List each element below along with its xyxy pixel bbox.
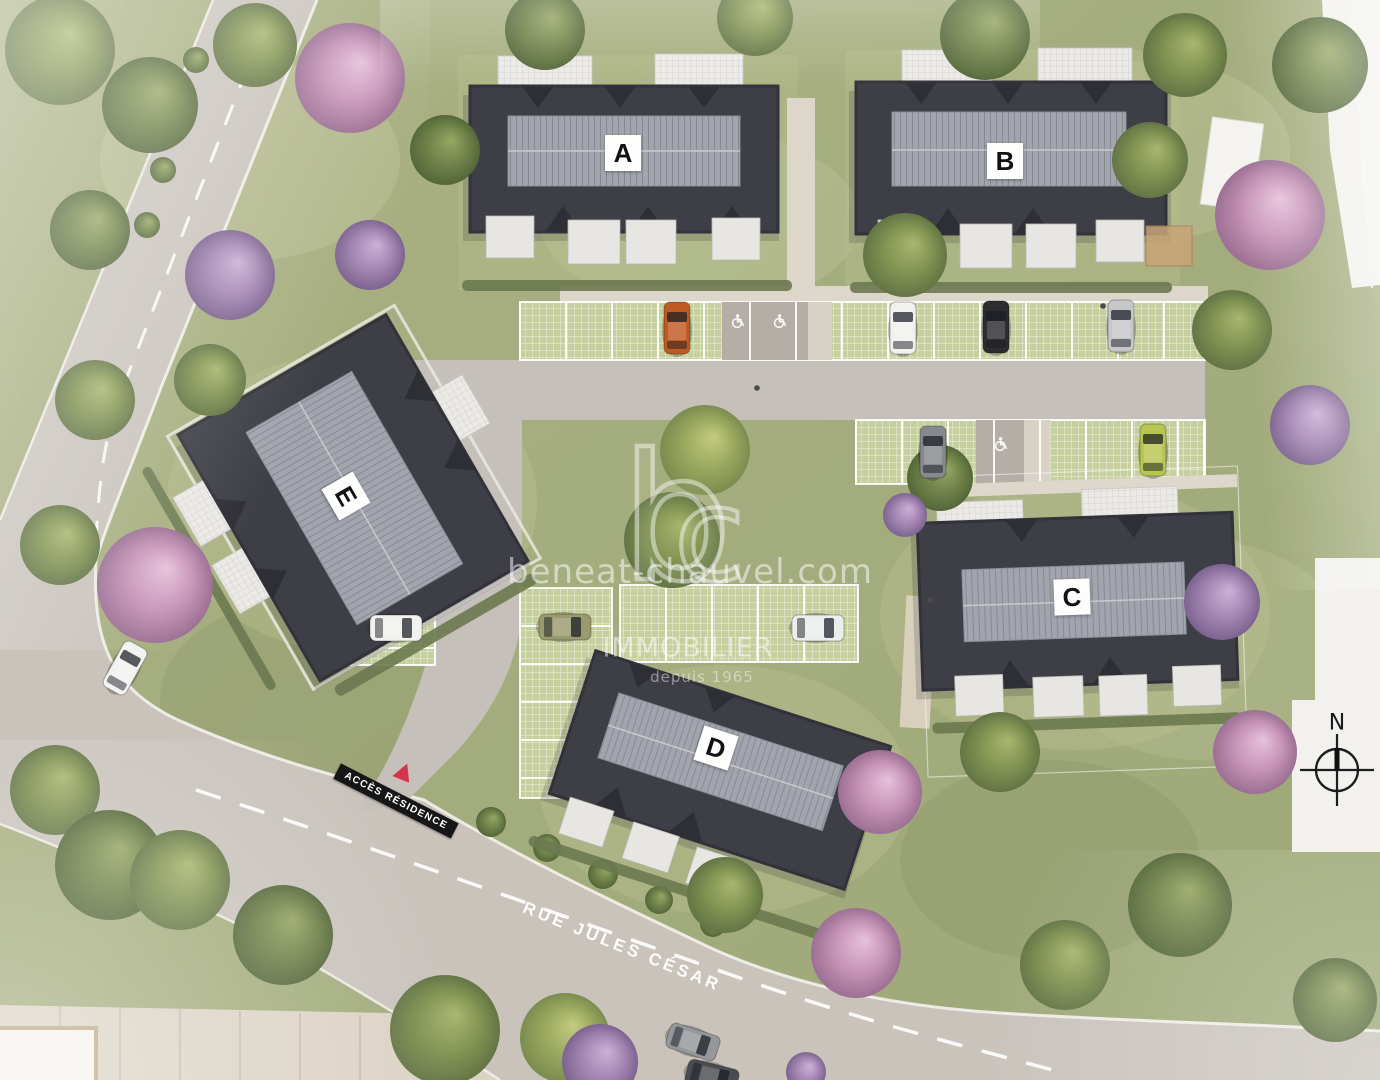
garden-pergola <box>1146 226 1192 266</box>
building-a <box>462 54 792 291</box>
tree <box>390 975 500 1080</box>
tree <box>1112 122 1188 198</box>
footpath <box>787 98 815 290</box>
watermark-brand: IMMOBILIER <box>602 633 773 664</box>
balcony <box>1172 665 1221 707</box>
car <box>536 612 591 642</box>
person <box>1100 303 1106 309</box>
car <box>789 613 844 643</box>
hedge-bush <box>134 212 160 238</box>
footpath <box>808 302 832 360</box>
car <box>981 301 1011 356</box>
hedge <box>462 280 792 291</box>
tree <box>1293 958 1377 1042</box>
balcony <box>486 216 534 258</box>
flowering-tree <box>335 220 405 290</box>
flowering-tree <box>1215 160 1325 270</box>
balcony <box>712 218 760 260</box>
tree <box>1020 920 1110 1010</box>
balcony <box>1099 674 1148 716</box>
flowering-tree <box>811 908 901 998</box>
flowering-shrub <box>883 493 927 537</box>
neighbor-roof-corner <box>0 1030 94 1080</box>
person <box>927 597 933 603</box>
tree <box>863 213 947 297</box>
flowering-tree <box>1270 385 1350 465</box>
balcony <box>955 674 1004 716</box>
footpath <box>1024 420 1050 484</box>
watermark-tagline: depuis 1965 <box>650 668 754 686</box>
balcony <box>1096 220 1144 262</box>
flowering-tree <box>97 527 213 643</box>
tree <box>410 115 480 185</box>
car <box>1106 300 1136 355</box>
building-label-a: A <box>605 135 641 171</box>
tree <box>960 712 1040 792</box>
tree <box>687 857 763 933</box>
compass-north-label: N <box>1329 711 1345 736</box>
tree <box>1128 853 1232 957</box>
car <box>918 426 948 481</box>
hedge-bush <box>150 157 176 183</box>
tree <box>1143 13 1227 97</box>
tree <box>20 505 100 585</box>
hedge-bush <box>183 47 209 73</box>
car <box>1138 424 1168 479</box>
balcony <box>626 220 676 264</box>
hedge-bush <box>476 807 506 837</box>
tree <box>50 190 130 270</box>
building-label-b: B <box>987 143 1023 179</box>
tree <box>102 57 198 153</box>
roof-terrace <box>1038 48 1132 86</box>
tree <box>5 0 115 105</box>
site-plan-rendering: A B C D E b c beneat-chauvel.com IMMOBIL… <box>0 0 1380 1080</box>
parking-stalls-pavers <box>520 302 1205 360</box>
balcony <box>1026 224 1076 268</box>
building-label-c: C <box>1053 578 1090 615</box>
car <box>367 613 422 643</box>
balcony <box>1033 676 1084 718</box>
roof-terrace <box>655 54 743 88</box>
flowering-tree <box>295 23 405 133</box>
tree <box>130 830 230 930</box>
tree <box>174 344 246 416</box>
flowering-tree <box>838 750 922 834</box>
person <box>754 385 760 391</box>
car <box>888 302 918 357</box>
tree <box>1192 290 1272 370</box>
compass-needle <box>1335 748 1340 770</box>
tree <box>1272 17 1368 113</box>
car <box>662 302 692 357</box>
flowering-tree <box>185 230 275 320</box>
watermark-website: beneat-chauvel.com <box>507 552 873 592</box>
flowering-tree <box>1213 710 1297 794</box>
tree <box>233 885 333 985</box>
balcony <box>960 224 1012 268</box>
flowering-tree <box>1184 564 1260 640</box>
balcony <box>568 220 620 264</box>
tree <box>213 3 297 87</box>
tree <box>55 360 135 440</box>
